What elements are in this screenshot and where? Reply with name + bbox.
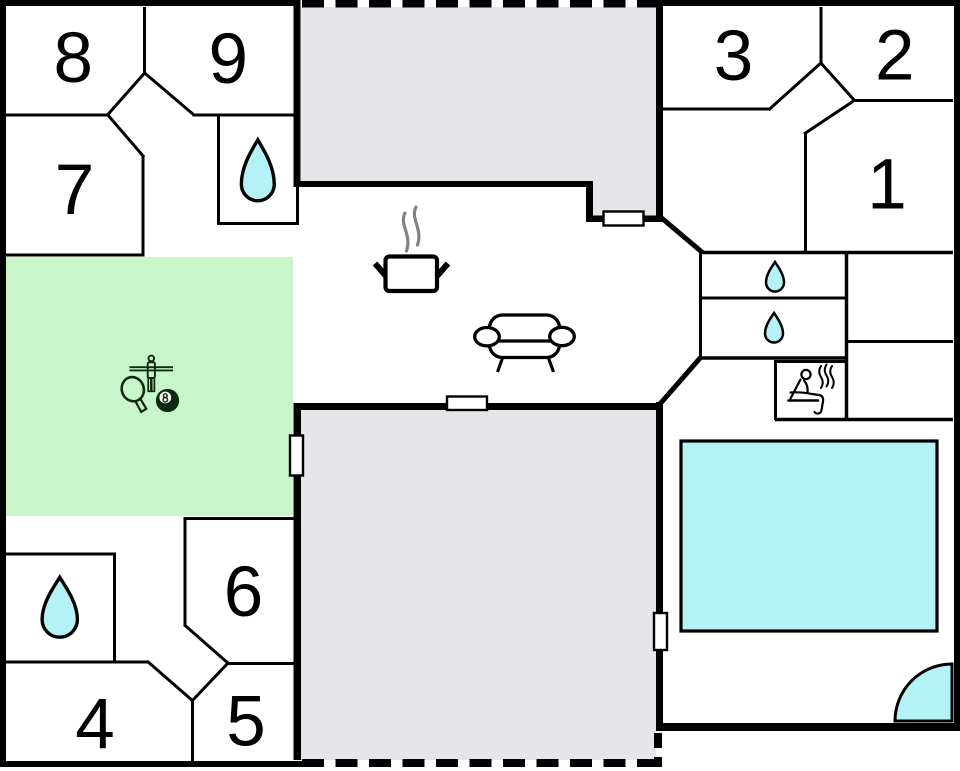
- svg-text:3: 3: [714, 17, 754, 96]
- svg-text:7: 7: [55, 151, 95, 230]
- svg-text:8: 8: [54, 19, 94, 98]
- svg-text:6: 6: [224, 553, 264, 632]
- svg-text:9: 9: [209, 20, 249, 99]
- svg-text:1: 1: [867, 146, 907, 225]
- svg-text:4: 4: [75, 685, 115, 764]
- svg-text:5: 5: [226, 682, 266, 761]
- svg-text:2: 2: [875, 16, 915, 95]
